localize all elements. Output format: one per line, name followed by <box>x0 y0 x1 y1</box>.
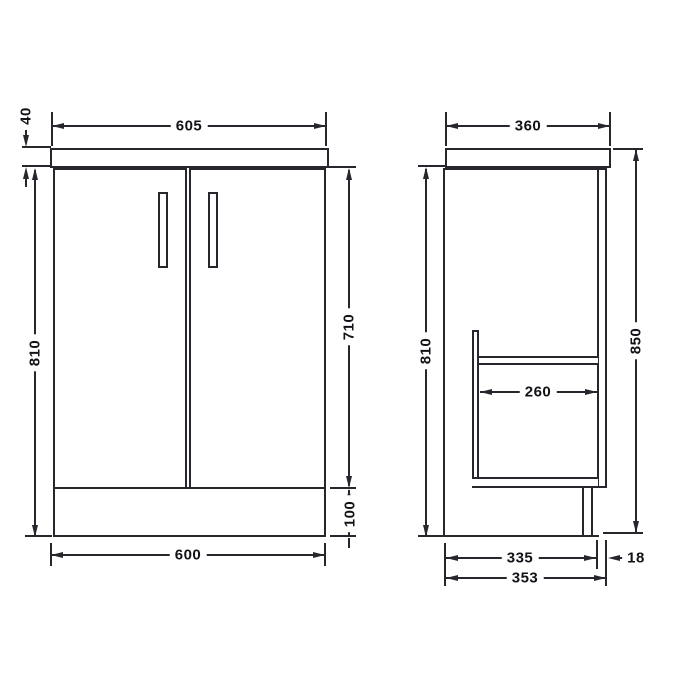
dim-810f-arrow-down <box>32 525 38 537</box>
dim-18-arrow <box>608 555 620 561</box>
dim-label-overall-height: 850 <box>627 323 646 360</box>
dim-label-plinth-height: 100 <box>341 496 360 533</box>
technical-drawing-canvas: 605 40 810 710 100 600 <box>0 0 700 700</box>
front-door-gap <box>185 168 191 489</box>
dim-label-front-unit-height: 810 <box>26 335 45 372</box>
dim-label-overall-depth: 353 <box>507 569 544 588</box>
front-plinth <box>53 487 326 537</box>
dim-100-tail <box>348 538 350 548</box>
dim-40-line-below <box>25 179 27 187</box>
side-worktop <box>445 148 611 168</box>
dim-850-arrow-up <box>633 149 639 161</box>
dim-360-arrow-right <box>598 123 610 129</box>
side-floor-line <box>443 535 599 537</box>
dim-605-ext-left <box>51 112 53 146</box>
dim-label-worktop-depth: 360 <box>510 117 547 136</box>
side-bottom-panel <box>472 477 598 488</box>
dim-260-arrow-right <box>585 389 597 395</box>
side-leg <box>582 488 593 535</box>
dim-600-arrow-right <box>313 552 325 558</box>
front-worktop <box>50 148 329 168</box>
dim-100-ext-bottom <box>330 535 356 537</box>
dim-600-arrow-left <box>51 552 63 558</box>
side-internal-back-panel <box>472 330 479 488</box>
dim-360-arrow-left <box>446 123 458 129</box>
dim-710-arrow-down <box>346 476 352 488</box>
dim-710-arrow-up <box>346 168 352 180</box>
dim-605-arrow-left <box>52 123 64 129</box>
dim-710-ext-bottom <box>330 487 356 489</box>
dim-353-arrow-left <box>446 575 458 581</box>
dim-260-arrow-left <box>480 389 492 395</box>
dim-label-worktop-width: 605 <box>171 117 208 136</box>
dim-810s-arrow-down <box>423 525 429 537</box>
right-door-handle <box>208 192 218 268</box>
side-door-strip <box>597 168 607 488</box>
dim-label-door-height: 710 <box>340 309 359 346</box>
side-back-edge <box>443 168 445 537</box>
dim-353-arrow-right <box>594 575 606 581</box>
dim-810f-arrow-up <box>32 168 38 180</box>
dim-810f-ext-bottom <box>25 535 52 537</box>
side-shelf <box>479 356 598 365</box>
dim-label-worktop-thickness: 40 <box>17 102 36 130</box>
dim-360-ext-left <box>445 112 447 146</box>
dim-40-arrow-down <box>23 135 29 147</box>
dim-label-cabinet-width: 600 <box>170 546 207 565</box>
dim-335-arrow-right <box>584 555 596 561</box>
dim-360-ext-right <box>609 112 611 146</box>
dim-label-shelf-depth: 260 <box>520 383 557 402</box>
dim-40-arrow-up <box>23 167 29 179</box>
dim-label-door-thickness: 18 <box>622 549 650 568</box>
dim-label-side-unit-height: 810 <box>417 333 436 370</box>
dim-605-ext-right <box>325 112 327 146</box>
dim-bottom-ext-carcass-front <box>596 540 598 569</box>
left-door-handle <box>158 192 168 268</box>
dim-850-arrow-down <box>633 521 639 533</box>
dim-810s-arrow-up <box>423 167 429 179</box>
dim-335-arrow-left <box>446 555 458 561</box>
side-top-edge <box>443 168 599 170</box>
dim-label-carcass-depth: 335 <box>502 549 539 568</box>
dim-605-arrow-right <box>314 123 326 129</box>
